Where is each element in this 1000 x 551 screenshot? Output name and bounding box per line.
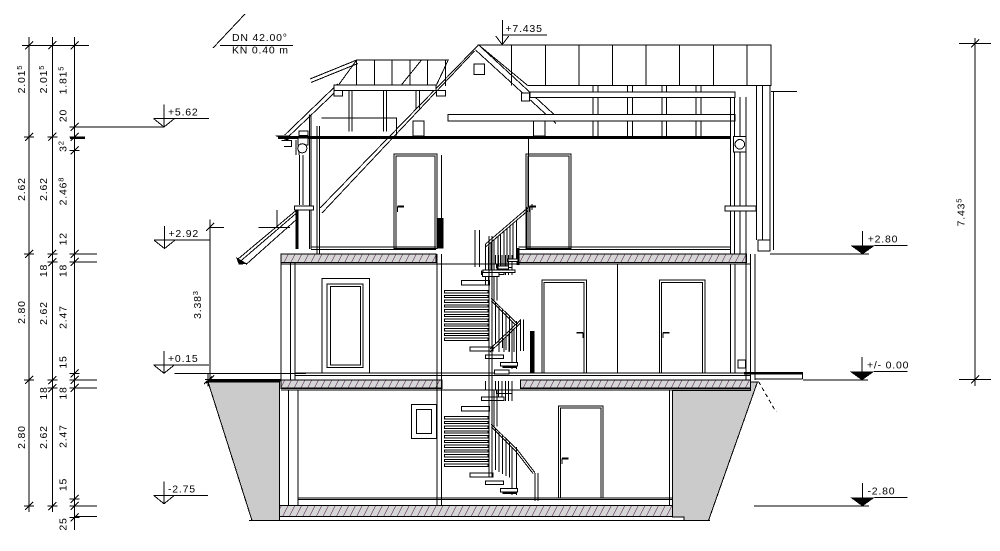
svg-text:+2.92: +2.92 [169,228,200,240]
svg-text:18: 18 [38,264,50,277]
svg-text:+/- 0.00: +/- 0.00 [867,360,909,372]
svg-text:2.80: 2.80 [16,300,28,324]
svg-text:2.47: 2.47 [58,305,70,329]
svg-text:18: 18 [58,264,70,277]
svg-text:DN 42.00°: DN 42.00° [232,32,288,44]
svg-text:15: 15 [58,478,70,491]
svg-text:KN 0.40 m: KN 0.40 m [232,45,289,57]
svg-text:2.62: 2.62 [38,177,50,201]
svg-text:+0.15: +0.15 [168,353,199,365]
svg-text:2.62: 2.62 [38,301,50,325]
svg-text:+5.62: +5.62 [168,107,199,119]
svg-text:2.62: 2.62 [16,177,28,201]
svg-text:+7.435: +7.435 [506,23,543,35]
svg-text:18: 18 [38,386,50,399]
svg-text:15: 15 [58,355,70,368]
svg-text:-2.75: -2.75 [168,483,196,495]
svg-text:2.47: 2.47 [58,424,70,448]
svg-text:2.80: 2.80 [16,425,28,449]
svg-text:2.62: 2.62 [38,425,50,449]
svg-text:-2.80: -2.80 [868,486,896,498]
svg-text:18: 18 [58,386,70,399]
svg-text:12: 12 [58,232,70,245]
svg-text:20: 20 [58,109,70,122]
svg-text:+2.80: +2.80 [868,234,899,246]
svg-text:25: 25 [58,517,70,530]
